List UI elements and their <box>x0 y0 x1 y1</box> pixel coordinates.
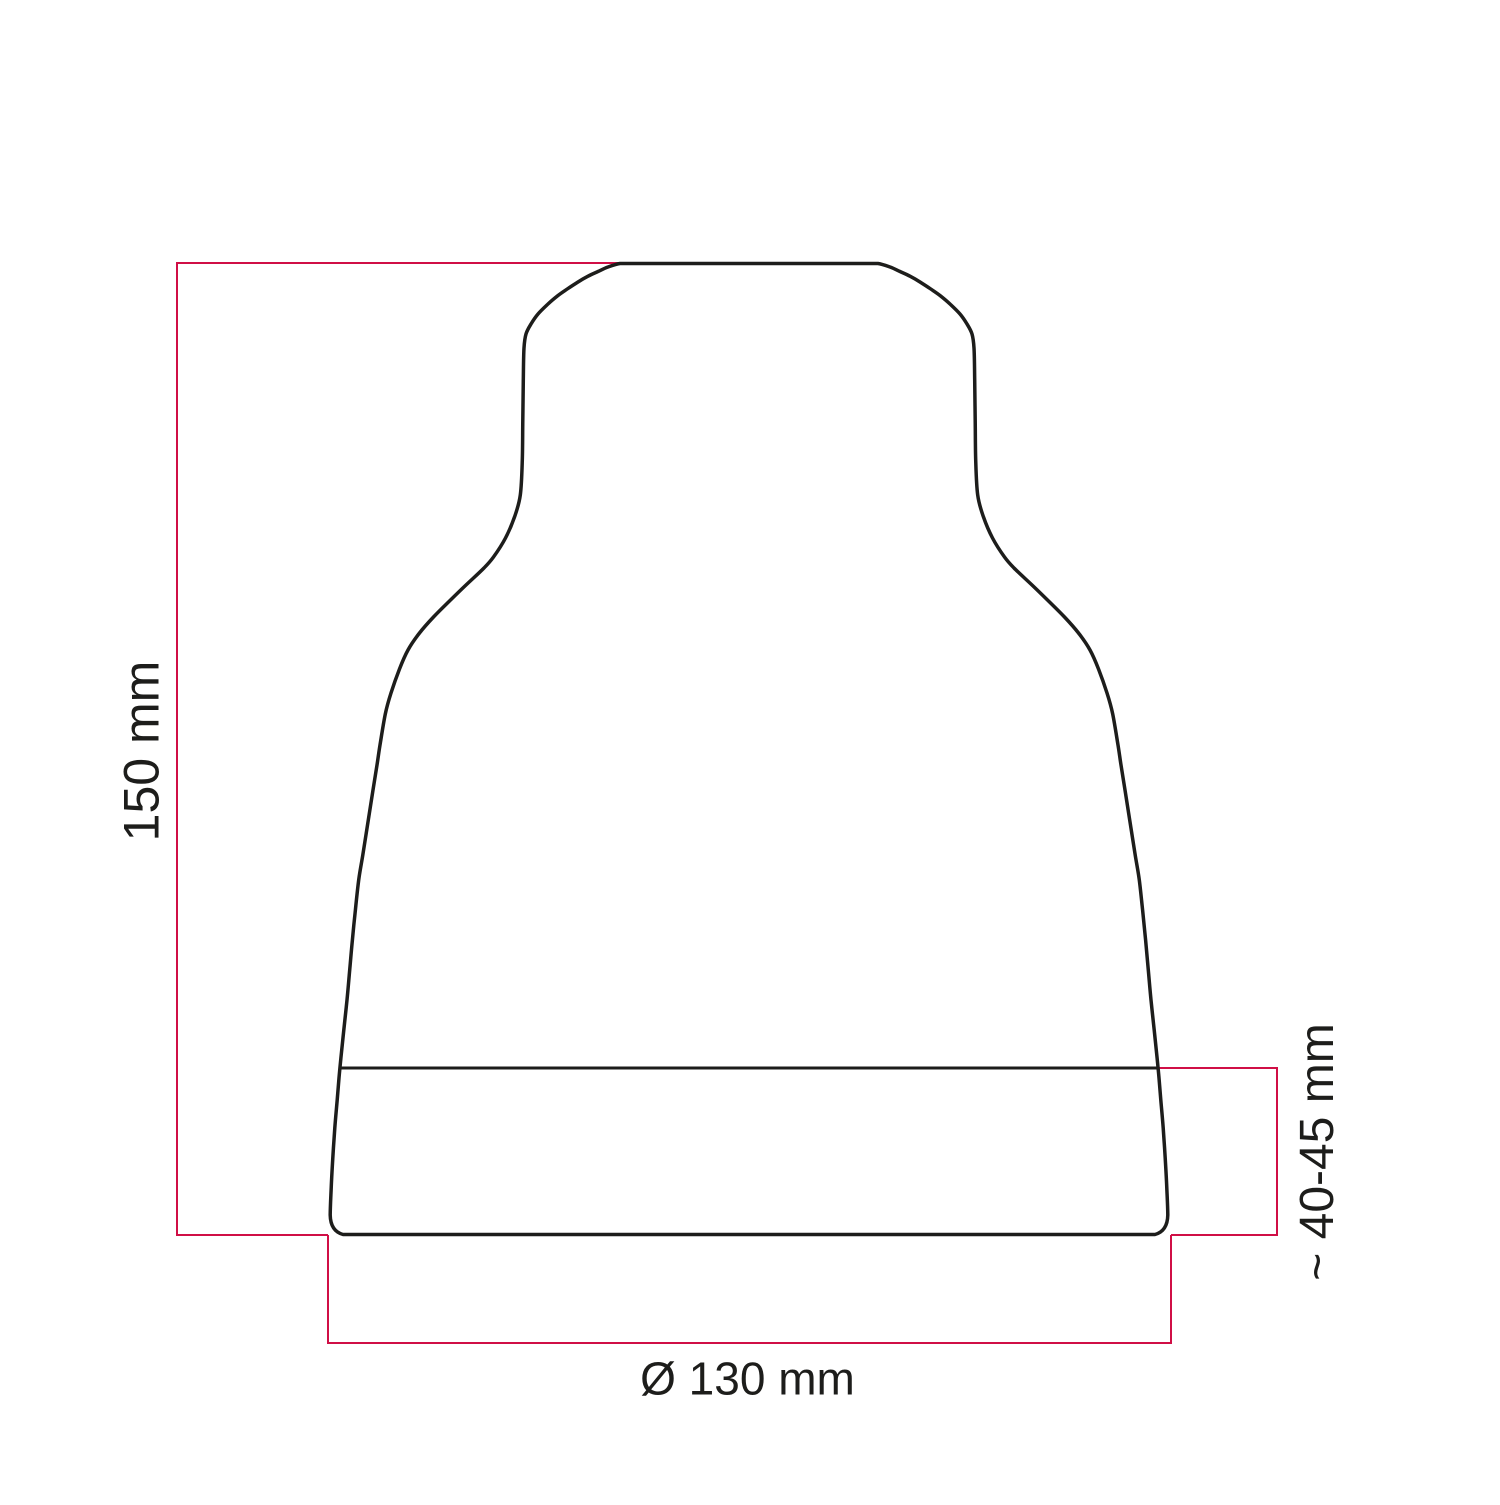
svg-text:150 mm: 150 mm <box>114 661 170 842</box>
svg-text:Ø 130 mm: Ø 130 mm <box>640 1353 855 1405</box>
svg-text:~ 40-45 mm: ~ 40-45 mm <box>1291 1023 1344 1280</box>
